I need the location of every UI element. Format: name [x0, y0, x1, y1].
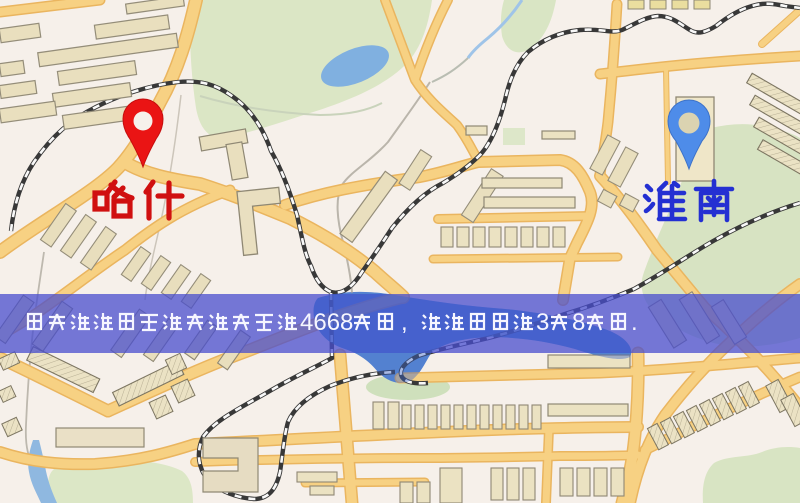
svg-text:,: ,	[401, 309, 408, 336]
svg-text:3: 3	[536, 309, 549, 336]
svg-text:4668: 4668	[300, 309, 353, 336]
svg-text:8: 8	[572, 309, 585, 336]
svg-text:.: .	[631, 309, 638, 336]
